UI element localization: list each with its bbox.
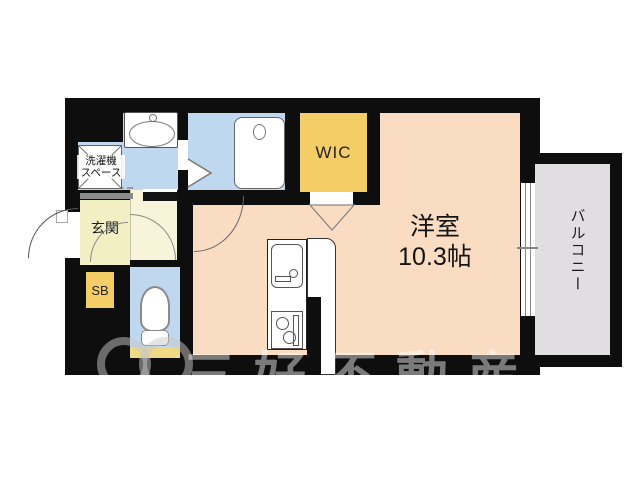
watermark-layer: 三好不動産 <box>0 0 640 375</box>
watermark-company-text: 三好不動産 <box>183 334 538 375</box>
floorplan-image: WIC SB バルコニー 洋室 10.3帖 玄関 洗濯機 スペース <box>0 0 640 480</box>
